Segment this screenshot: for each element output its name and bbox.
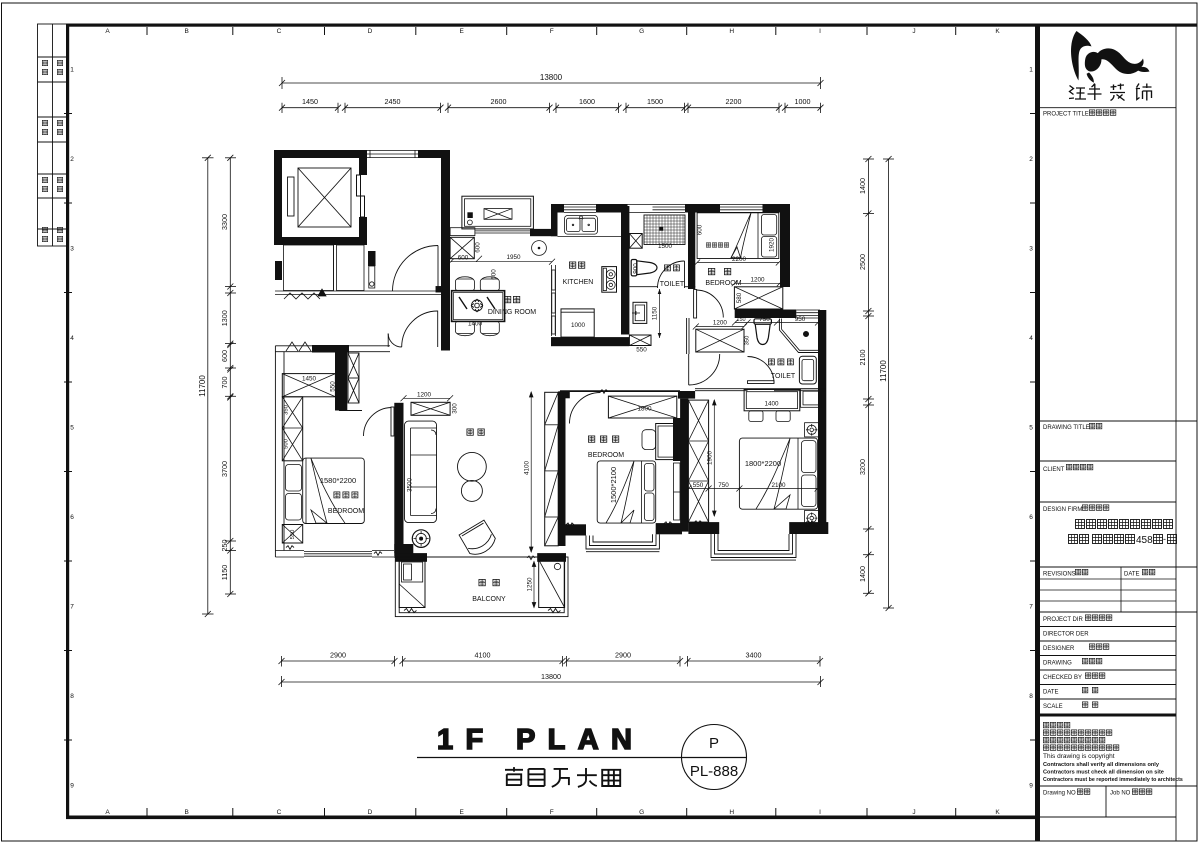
svg-text:Job NO: Job NO	[1110, 791, 1131, 797]
svg-text:BEDROOM: BEDROOM	[328, 508, 364, 515]
svg-text:750: 750	[718, 482, 729, 489]
svg-text:D: D	[368, 28, 373, 35]
svg-text:J: J	[912, 28, 915, 35]
svg-text:DATE: DATE	[1043, 690, 1059, 696]
svg-text:TOILET: TOILET	[771, 373, 796, 380]
svg-text:G: G	[639, 28, 644, 35]
svg-text:1: 1	[1029, 67, 1033, 74]
svg-text:2200: 2200	[732, 256, 747, 263]
svg-text:600: 600	[491, 269, 498, 280]
svg-text:CHECKED BY: CHECKED BY	[1043, 675, 1082, 681]
svg-text:8: 8	[1029, 693, 1033, 700]
svg-text:1800: 1800	[637, 406, 652, 413]
svg-text:Contractors shall verify all d: Contractors shall verify all dimensions …	[1043, 762, 1160, 768]
svg-text:2100: 2100	[771, 482, 786, 489]
svg-text:458: 458	[1136, 535, 1153, 546]
svg-text:Drawing NO: Drawing NO	[1043, 791, 1076, 797]
svg-text:1200: 1200	[750, 276, 765, 283]
svg-text:13800: 13800	[540, 73, 563, 82]
svg-text:2600: 2600	[491, 97, 507, 106]
svg-text:2: 2	[1029, 156, 1033, 163]
svg-text:250: 250	[220, 540, 229, 552]
svg-text:1: 1	[70, 67, 74, 74]
svg-text:REVISIONS: REVISIONS	[1043, 572, 1076, 578]
svg-text:C: C	[277, 809, 282, 816]
svg-text:550: 550	[693, 482, 704, 489]
svg-text:KITCHEN: KITCHEN	[563, 279, 594, 286]
svg-text:3300: 3300	[220, 214, 229, 230]
svg-text:600: 600	[475, 242, 482, 253]
svg-text:900: 900	[633, 263, 640, 274]
svg-text:600: 600	[220, 350, 229, 362]
svg-text:500: 500	[284, 439, 290, 449]
svg-text:H: H	[729, 28, 734, 35]
svg-text:3: 3	[70, 246, 74, 253]
svg-text:4100: 4100	[524, 461, 531, 476]
svg-text:3500: 3500	[407, 478, 414, 493]
svg-text:DINING ROOM: DINING ROOM	[488, 309, 536, 316]
svg-text:4: 4	[70, 335, 74, 342]
svg-text:7: 7	[70, 604, 74, 611]
svg-text:1500: 1500	[658, 243, 673, 250]
svg-text:1500: 1500	[647, 97, 663, 106]
svg-text:2200: 2200	[726, 97, 742, 106]
svg-text:I: I	[819, 809, 821, 816]
svg-text:1580*2200: 1580*2200	[320, 476, 356, 485]
svg-text:PROJECT TITLE: PROJECT TITLE	[1043, 112, 1089, 118]
svg-text:550: 550	[636, 347, 647, 354]
svg-text:1900: 1900	[707, 451, 714, 466]
svg-text:K: K	[995, 28, 1000, 35]
svg-text:C: C	[277, 28, 282, 35]
svg-text:E: E	[460, 809, 465, 816]
svg-text:G: G	[639, 809, 644, 816]
svg-text:1400: 1400	[764, 401, 779, 408]
svg-text:E: E	[460, 28, 465, 35]
svg-text:6: 6	[1029, 514, 1033, 521]
svg-text:BEDROOM: BEDROOM	[588, 452, 624, 459]
svg-text:750: 750	[759, 316, 770, 323]
svg-text:DIRECTOR DER: DIRECTOR DER	[1043, 632, 1089, 638]
svg-text:-: -	[1163, 534, 1166, 544]
svg-text:700: 700	[220, 377, 229, 389]
svg-text:1500*2100: 1500*2100	[609, 467, 618, 503]
svg-text:F: F	[550, 809, 554, 816]
svg-text:1150: 1150	[220, 565, 229, 580]
svg-text:B: B	[185, 809, 189, 816]
svg-text:1450: 1450	[302, 376, 317, 383]
svg-text:1950: 1950	[506, 254, 521, 261]
svg-text:4: 4	[1029, 335, 1033, 342]
svg-text:TOILET: TOILET	[660, 281, 685, 288]
svg-text:1250: 1250	[527, 577, 534, 592]
svg-text:600: 600	[697, 224, 704, 235]
svg-text:6: 6	[70, 514, 74, 521]
svg-text:I: I	[819, 28, 821, 35]
svg-text:3400: 3400	[746, 651, 762, 660]
svg-text:9: 9	[70, 783, 74, 790]
svg-text:1200: 1200	[713, 320, 728, 327]
svg-text:1300: 1300	[220, 310, 229, 326]
svg-text:13800: 13800	[541, 672, 561, 681]
svg-text:Contractors must check all dim: Contractors must check all dimension on …	[1043, 770, 1164, 776]
svg-text:DESIGN FIRM: DESIGN FIRM	[1043, 507, 1082, 513]
svg-text:1400: 1400	[468, 321, 483, 328]
svg-text:F: F	[550, 28, 554, 35]
svg-text:D: D	[368, 809, 373, 816]
svg-text:CLIENT: CLIENT	[1043, 467, 1065, 473]
svg-text:2900: 2900	[615, 651, 631, 660]
svg-text:3: 3	[1029, 246, 1033, 253]
svg-text:1450: 1450	[302, 97, 318, 106]
svg-text:1200: 1200	[417, 391, 432, 398]
svg-text:DESIGNER: DESIGNER	[1043, 646, 1075, 652]
svg-text:K: K	[995, 809, 1000, 816]
svg-text:5: 5	[1029, 425, 1033, 432]
svg-text:DRAWING TITLE: DRAWING TITLE	[1043, 425, 1090, 431]
svg-text:1000: 1000	[571, 322, 586, 329]
svg-text:1000: 1000	[795, 97, 811, 106]
svg-text:A: A	[105, 809, 110, 816]
svg-text:1150: 1150	[652, 306, 659, 320]
svg-text:PL-888: PL-888	[690, 763, 738, 780]
svg-text:3700: 3700	[220, 461, 229, 477]
svg-text:This drawing is copyright: This drawing is copyright	[1043, 753, 1115, 760]
svg-text:3200: 3200	[858, 459, 867, 475]
svg-text:300: 300	[452, 403, 459, 414]
svg-text:11700: 11700	[198, 375, 207, 397]
svg-text:550: 550	[290, 530, 296, 540]
svg-text:P: P	[709, 735, 719, 752]
svg-text:DRAWING: DRAWING	[1043, 661, 1072, 667]
svg-text:580: 580	[736, 292, 743, 303]
svg-text:2450: 2450	[385, 97, 401, 106]
svg-text:1920: 1920	[769, 238, 776, 253]
svg-text:350: 350	[284, 405, 290, 415]
svg-text:950: 950	[795, 316, 806, 323]
svg-text:H: H	[729, 809, 734, 816]
svg-text:11700: 11700	[879, 360, 888, 382]
svg-text:600: 600	[458, 255, 469, 262]
svg-text:9: 9	[1029, 783, 1033, 790]
svg-text:1400: 1400	[858, 178, 867, 194]
svg-text:A: A	[105, 28, 110, 35]
svg-text:1400: 1400	[858, 566, 867, 582]
svg-text:550: 550	[330, 381, 337, 392]
svg-text:2: 2	[70, 156, 74, 163]
svg-text:350: 350	[745, 336, 751, 346]
svg-text:DATE: DATE	[1124, 572, 1140, 578]
svg-text:2900: 2900	[330, 651, 346, 660]
svg-text:SCALE: SCALE	[1043, 704, 1063, 710]
svg-text:1800*2200: 1800*2200	[745, 459, 781, 468]
svg-text:8: 8	[70, 693, 74, 700]
svg-text:2500: 2500	[858, 254, 867, 270]
svg-text:Contractors must be reported i: Contractors must be reported immediately…	[1043, 777, 1183, 783]
svg-text:BALCONY: BALCONY	[472, 596, 506, 603]
svg-text:J: J	[912, 809, 915, 816]
svg-text:2100: 2100	[858, 350, 867, 366]
svg-text:1600: 1600	[579, 97, 595, 106]
svg-text:PROJECT DIR: PROJECT DIR	[1043, 617, 1084, 623]
svg-text:7: 7	[1029, 604, 1033, 611]
svg-text:B: B	[185, 28, 189, 35]
svg-text:5: 5	[70, 425, 74, 432]
svg-text:150: 150	[736, 317, 745, 323]
svg-text:4100: 4100	[475, 651, 491, 660]
